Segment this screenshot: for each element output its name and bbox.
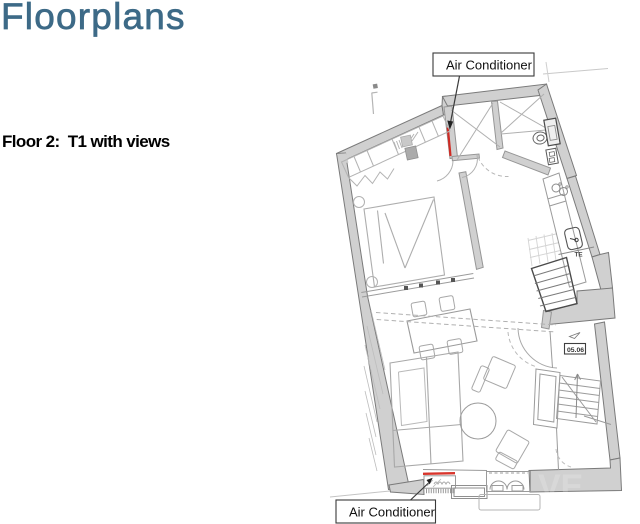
svg-text:Air Conditioner: Air Conditioner bbox=[446, 58, 533, 73]
svg-text:VE: VE bbox=[538, 468, 583, 506]
svg-text:TE: TE bbox=[575, 252, 583, 259]
svg-text:Air Conditioner: Air Conditioner bbox=[349, 505, 436, 520]
svg-text:05.06: 05.06 bbox=[567, 347, 584, 354]
